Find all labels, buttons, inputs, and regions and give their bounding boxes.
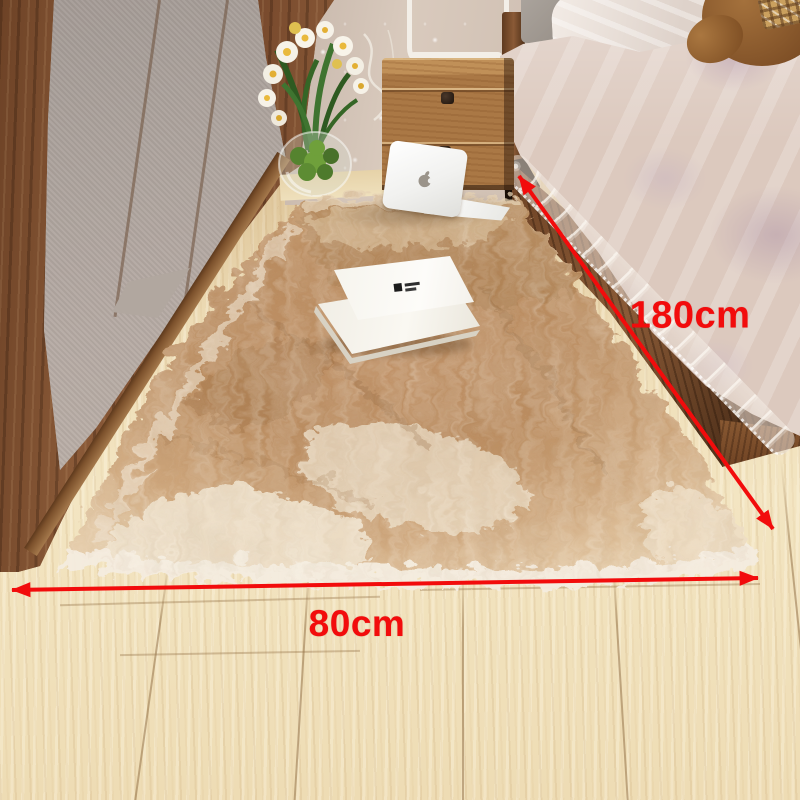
apple-logo-icon: [416, 169, 437, 191]
book-logo-icon: [393, 278, 426, 296]
laptop: [382, 140, 469, 218]
length-label: 180cm: [630, 295, 751, 338]
drawer-knob: [441, 92, 454, 104]
faux-fur-rug: [0, 0, 800, 800]
book-stack: [310, 248, 490, 360]
width-label: 80cm: [309, 603, 406, 645]
bedroom-product-photo: 180cm 80cm: [0, 0, 800, 800]
